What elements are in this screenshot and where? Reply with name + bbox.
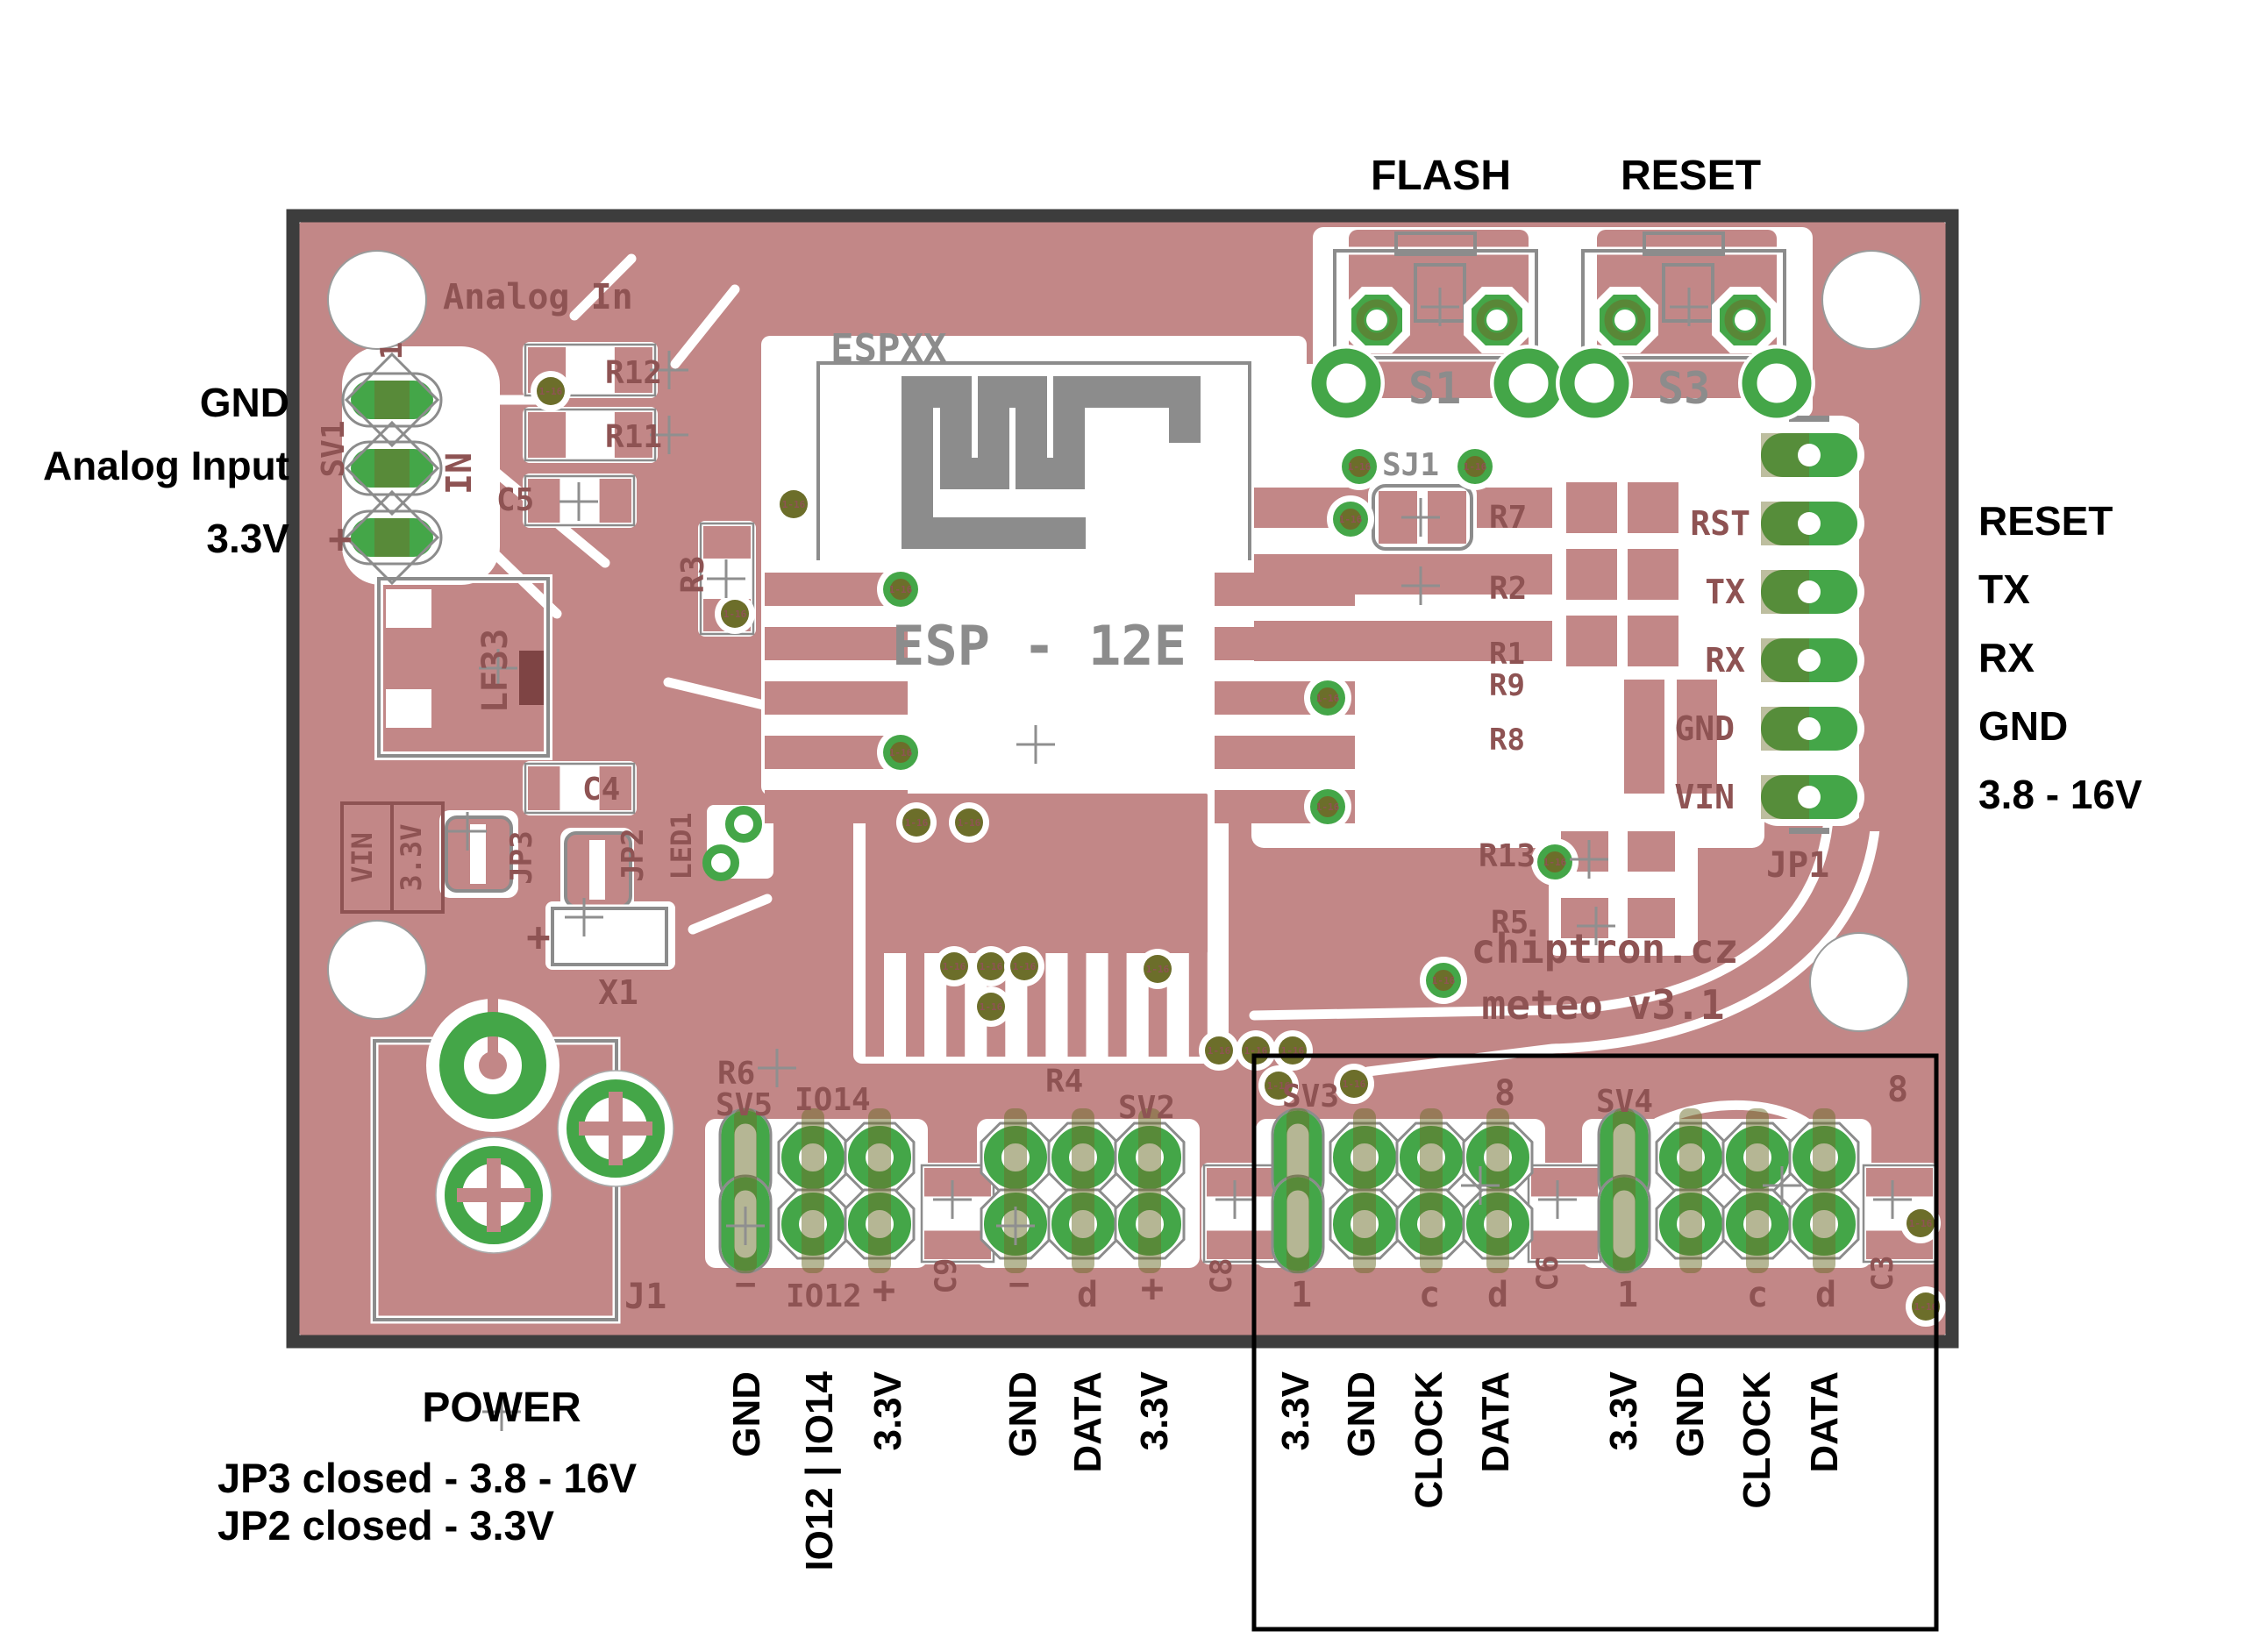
button-label-reset: RESET — [1498, 152, 1884, 200]
silkscreen-label: − — [1008, 1264, 1030, 1305]
pcb-shape — [1628, 831, 1675, 872]
silkscreen-label: SV4 — [1596, 1084, 1653, 1120]
bottom-pin-label: 3.3V — [1133, 1371, 1177, 1451]
via-drill-label: 1-16 — [1909, 1218, 1933, 1229]
pcb-shape — [1353, 1108, 1376, 1273]
bottom-pin-label: DATA — [1803, 1371, 1847, 1473]
via-drill-label: 1-16 — [943, 961, 966, 972]
bottom-pin-label: CLOCK — [1735, 1371, 1779, 1508]
silkscreen-label: GND — [1674, 709, 1735, 748]
silkscreen-label: C8 — [1204, 1258, 1239, 1294]
silkscreen-label: c — [1747, 1275, 1768, 1315]
silkscreen-label: ESPXX — [830, 326, 946, 371]
pcb-shape — [374, 381, 410, 419]
silkscreen-label: RX — [1705, 641, 1745, 680]
via-drill-label: 1-16 — [1208, 1045, 1231, 1057]
silkscreen-label: C3 — [1865, 1256, 1900, 1292]
bottom-pin-label: IO12 | IO14 — [798, 1371, 842, 1571]
pcb-shape — [1624, 680, 1664, 794]
silkscreen-label: SV3 — [1282, 1079, 1339, 1114]
silkscreen-label: + — [328, 515, 353, 562]
via-drill-label: 1-16 — [1013, 961, 1037, 972]
bottom-pin-label: 3.3V — [866, 1371, 910, 1451]
via-drill-label: 1-16 — [723, 609, 747, 620]
silkscreen-label: C6 — [1530, 1256, 1565, 1292]
pcb-shape — [1628, 482, 1678, 533]
pcb-shape — [519, 651, 544, 705]
pcb-shape — [1138, 1108, 1161, 1273]
right-pin-label: RX — [1978, 634, 2035, 681]
pcb-shape — [386, 589, 431, 628]
silkscreen-label: + — [526, 913, 551, 960]
pcb-shape — [1735, 310, 1756, 331]
pcb-shape — [1366, 310, 1387, 331]
silkscreen-label: TX — [1705, 573, 1745, 611]
silkscreen-label: 1 — [1617, 1275, 1638, 1315]
silkscreen-label: 1 — [374, 342, 410, 360]
silkscreen-label: S3 — [1657, 363, 1710, 414]
pcb-shape — [609, 1092, 623, 1165]
pcb-shape — [1004, 1108, 1027, 1273]
silkscreen-label: IO12 — [786, 1278, 862, 1314]
pcb-shape — [1207, 1231, 1273, 1259]
pcb-shape — [703, 526, 751, 559]
silkscreen-label: C4 — [582, 772, 620, 808]
silkscreen-label: R7 — [1489, 500, 1527, 536]
pcb-shape — [765, 627, 908, 660]
via-drill-label: 1-16 — [1316, 801, 1340, 813]
silkscreen-label: + — [1141, 1266, 1165, 1311]
silkscreen-label: J1 — [624, 1277, 666, 1317]
bottom-pin-label: 3.3V — [1602, 1371, 1646, 1451]
silkscreen-label: RST — [1690, 504, 1750, 543]
pcb-shape — [1798, 444, 1821, 466]
silkscreen-label: d — [1487, 1275, 1508, 1315]
silkscreen-label: R2 — [1489, 571, 1527, 607]
via-drill-label: 1-16 — [539, 386, 563, 397]
pcb-shape — [1068, 951, 1087, 1057]
silkscreen-label: R3 — [675, 555, 711, 593]
bottom-pin-label: GND — [725, 1371, 769, 1457]
silkscreen-label: VIN — [1674, 778, 1735, 816]
via-drill-label: 1-16 — [1339, 514, 1363, 525]
pcb-shape — [1215, 736, 1355, 769]
pcb-shape — [1486, 1108, 1509, 1273]
silkscreen-label: C9 — [929, 1258, 964, 1294]
silkscreen-label: c — [1419, 1275, 1440, 1315]
pcb-shape — [528, 766, 559, 810]
silkscreen-label: ESP - 12E — [892, 614, 1187, 678]
right-pin-label: 3.8 - 16V — [1978, 771, 2142, 818]
silkscreen-label: X1 — [598, 973, 638, 1012]
silkscreen-label: JP3 — [504, 830, 539, 884]
bottom-pin-label: DATA — [1474, 1371, 1518, 1473]
silkscreen-label: R9 — [1489, 668, 1525, 703]
via-drill-label: 1-16 — [1343, 1079, 1366, 1090]
via-drill-label: 1-16 — [889, 584, 913, 595]
silkscreen-label: R13 — [1479, 838, 1536, 874]
pcb-shape — [589, 840, 605, 900]
via-drill-label: 1-16 — [1316, 693, 1340, 704]
pcb-shape — [1866, 1168, 1933, 1196]
pcb-shape — [1798, 649, 1821, 672]
pcb-shape — [374, 449, 410, 488]
silkscreen-label: 8 — [1887, 1070, 1908, 1110]
silkscreen-label: − — [735, 1264, 756, 1305]
via-drill-label: 1-16 — [889, 747, 913, 758]
mounting-hole — [328, 921, 426, 1019]
pcb-shape — [1420, 1108, 1443, 1273]
via-drill-label: 1-16 — [1432, 975, 1456, 986]
pcb-shape — [1798, 717, 1821, 740]
silkscreen-label: LF33 — [475, 629, 516, 713]
pcb-shape — [470, 824, 486, 884]
bottom-pin-label: CLOCK — [1408, 1371, 1451, 1508]
via-drill-label: 1-16 — [782, 499, 806, 510]
left-pin-label: Analog Input — [0, 442, 289, 489]
left-pin-label: 3.3V — [0, 515, 289, 562]
pcb-shape — [1286, 1108, 1309, 1273]
pcb-shape — [1613, 1108, 1636, 1273]
pcb-shape — [479, 1051, 507, 1079]
pcb-shape — [1072, 1108, 1094, 1273]
mounting-hole — [328, 251, 426, 349]
pcb-shape — [1531, 1231, 1598, 1259]
via-drill-label: 1-16 — [958, 817, 981, 829]
silkscreen-label: d — [1077, 1275, 1098, 1315]
silkscreen-label: R6 — [717, 1056, 755, 1092]
silkscreen-label: SV2 — [1118, 1090, 1175, 1126]
pcb-diagram-page: 1-161-161-161-161-161-161-161-161-161-16… — [0, 0, 2245, 1652]
pcb-shape — [374, 518, 410, 557]
silkscreen-label: JP2 — [616, 828, 651, 881]
silkscreen-label: 1 — [1291, 1275, 1312, 1315]
jp2-note: JP2 closed - 3.3V — [217, 1501, 554, 1549]
pcb-shape — [600, 479, 631, 523]
pcb-shape — [1813, 1108, 1835, 1273]
silkscreen-label: Analog In — [443, 277, 633, 317]
via-drill-label: 1-16 — [980, 961, 1003, 972]
silkscreen-label: R11 — [605, 419, 662, 455]
right-pin-label: RESET — [1978, 497, 2113, 545]
bottom-pin-label: GND — [1669, 1371, 1713, 1457]
bottom-pin-label: 3.3V — [1274, 1371, 1318, 1451]
silkscreen-label: R1 — [1489, 637, 1525, 672]
pcb-shape — [487, 1158, 501, 1232]
jp3-note: JP3 closed - 3.8 - 16V — [217, 1454, 637, 1502]
via-drill-label: 1-16 — [1348, 461, 1372, 473]
pcb-shape — [1798, 512, 1821, 535]
pcb-shape — [1628, 549, 1678, 600]
pcb-shape — [1859, 419, 1942, 831]
silkscreen-label: d — [1815, 1275, 1836, 1315]
bottom-pin-label: DATA — [1066, 1371, 1110, 1473]
pcb-shape — [1614, 310, 1636, 331]
via-drill-label: 1-16 — [1543, 857, 1567, 868]
silkscreen-label: + — [873, 1268, 896, 1313]
silkscreen-label: SV5 — [716, 1087, 773, 1123]
pcb-shape — [1679, 1108, 1702, 1273]
pcb-shape — [1486, 310, 1507, 331]
silkscreen-label: SV1 — [316, 420, 352, 477]
silkscreen-label: SJ1 — [1382, 447, 1439, 483]
via-drill-label: 1-16 — [980, 1001, 1003, 1013]
pcb-shape — [765, 681, 908, 715]
pcb-shape — [1566, 482, 1617, 533]
right-pin-label: GND — [1978, 702, 2068, 750]
silkscreen-label: R8 — [1489, 723, 1525, 758]
pcb-shape — [1628, 616, 1678, 666]
pcb-shape — [386, 689, 431, 728]
right-pin-label: TX — [1978, 566, 2030, 613]
silkscreen-label: C5 — [496, 482, 534, 518]
pcb-shape — [1789, 828, 1829, 834]
pcb-shape — [1108, 951, 1127, 1057]
silkscreen-label: 3.3V — [395, 823, 428, 891]
via-drill-label: 1-16 — [905, 817, 929, 829]
pcb-shape — [1566, 616, 1617, 666]
power-title: POWER — [326, 1384, 677, 1432]
silkscreen-label: LED1 — [665, 812, 698, 879]
silkscreen-label: R12 — [605, 355, 662, 391]
pcb-shape — [1566, 549, 1617, 600]
bottom-pin-label: GND — [1001, 1371, 1045, 1457]
pcb-shape — [734, 1108, 757, 1273]
silkscreen-label: R4 — [1045, 1064, 1083, 1100]
pcb-shape — [1207, 1168, 1273, 1196]
pcb-shape — [868, 1108, 891, 1273]
mounting-hole — [1822, 251, 1921, 349]
pcb-shape — [1798, 580, 1821, 603]
silkscreen-label: R5 — [1491, 905, 1529, 941]
silkscreen-label: S1 — [1408, 363, 1461, 414]
pcb-shape — [1746, 1108, 1769, 1273]
pcb-shape — [528, 412, 566, 458]
silkscreen-label: IN — [439, 452, 480, 495]
pcb-shape — [906, 951, 924, 1057]
via-drill-label: 1-16 — [1464, 461, 1487, 473]
pcb-shape — [1798, 786, 1821, 808]
silkscreen-label: VIN — [346, 832, 379, 883]
silkscreen-label: meteo v3.1 — [1482, 981, 1725, 1029]
bottom-pin-label: GND — [1340, 1371, 1384, 1457]
mounting-hole — [1810, 933, 1908, 1031]
silkscreen-label: JP1 — [1766, 845, 1829, 886]
via-drill-label: 1-16 — [1146, 964, 1170, 975]
pcb-shape — [866, 951, 884, 1057]
silkscreen-label: 8 — [1494, 1073, 1515, 1114]
pcb-shape — [1531, 1168, 1598, 1196]
silkscreen-label: IO14 — [795, 1082, 871, 1118]
pcb-shape — [802, 1108, 824, 1273]
left-pin-label: GND — [0, 379, 289, 426]
